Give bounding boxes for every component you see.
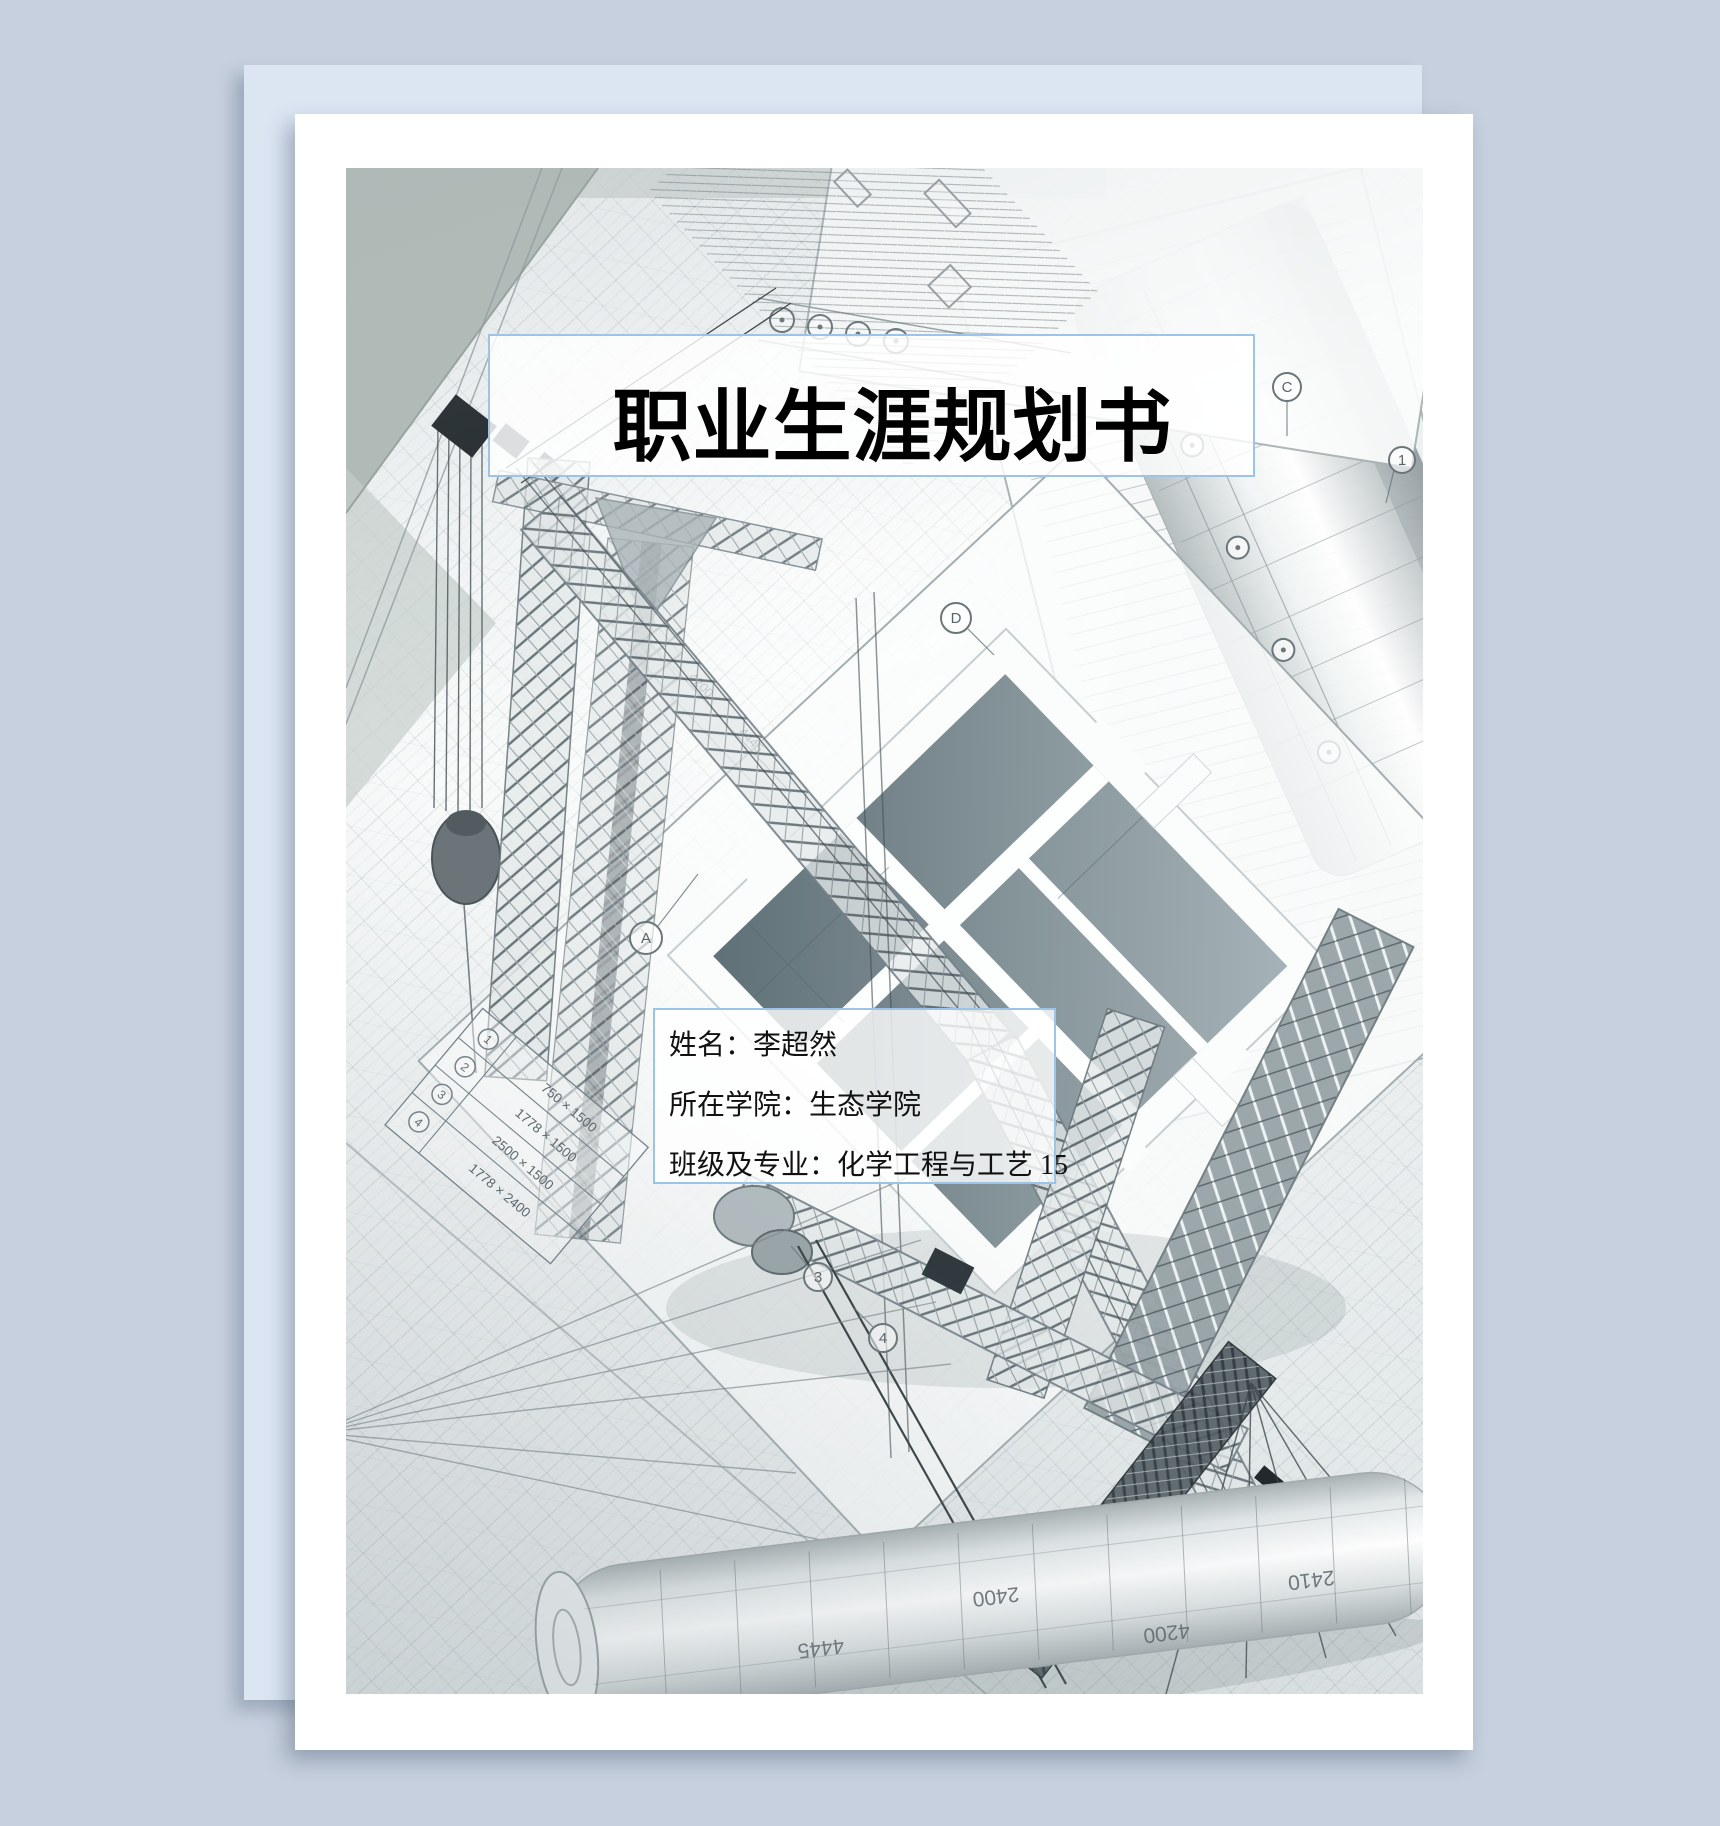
blueprint-cover-image: 4200 4445 xyxy=(346,168,1423,1694)
grid-marker-label: 4 xyxy=(879,1330,887,1347)
info-box: 姓名：李超然 所在学院：生态学院 班级及专业：化学工程与工艺 15 xyxy=(653,1008,1056,1184)
rolled-drawing-bottom: 4445 2400 4200 2410 xyxy=(528,1464,1423,1694)
info-row-major: 班级及专业：化学工程与工艺 15 xyxy=(669,1136,1054,1196)
info-row-name: 姓名：李超然 xyxy=(669,1016,1054,1076)
title-box: 职业生涯规划书 xyxy=(488,334,1255,477)
preview-background: 4200 4445 xyxy=(0,0,1720,1826)
grid-marker-label: 1 xyxy=(1398,452,1406,469)
cover-page: 4200 4445 xyxy=(295,114,1473,1750)
cover-title: 职业生涯规划书 xyxy=(613,362,1173,477)
major-label: 班级及专业： xyxy=(669,1150,837,1181)
college-label: 所在学院： xyxy=(669,1090,809,1121)
info-row-college: 所在学院：生态学院 xyxy=(669,1076,1054,1136)
grid-marker-label: C xyxy=(1282,379,1293,396)
major-value: 化学工程与工艺 15 xyxy=(837,1150,1068,1181)
grid-marker-label: 3 xyxy=(814,1269,822,1286)
grid-marker-label: A xyxy=(641,930,651,947)
name-value: 李超然 xyxy=(753,1030,837,1061)
name-label: 姓名： xyxy=(669,1030,753,1061)
college-value: 生态学院 xyxy=(809,1090,921,1121)
grid-marker-label: D xyxy=(951,610,962,627)
